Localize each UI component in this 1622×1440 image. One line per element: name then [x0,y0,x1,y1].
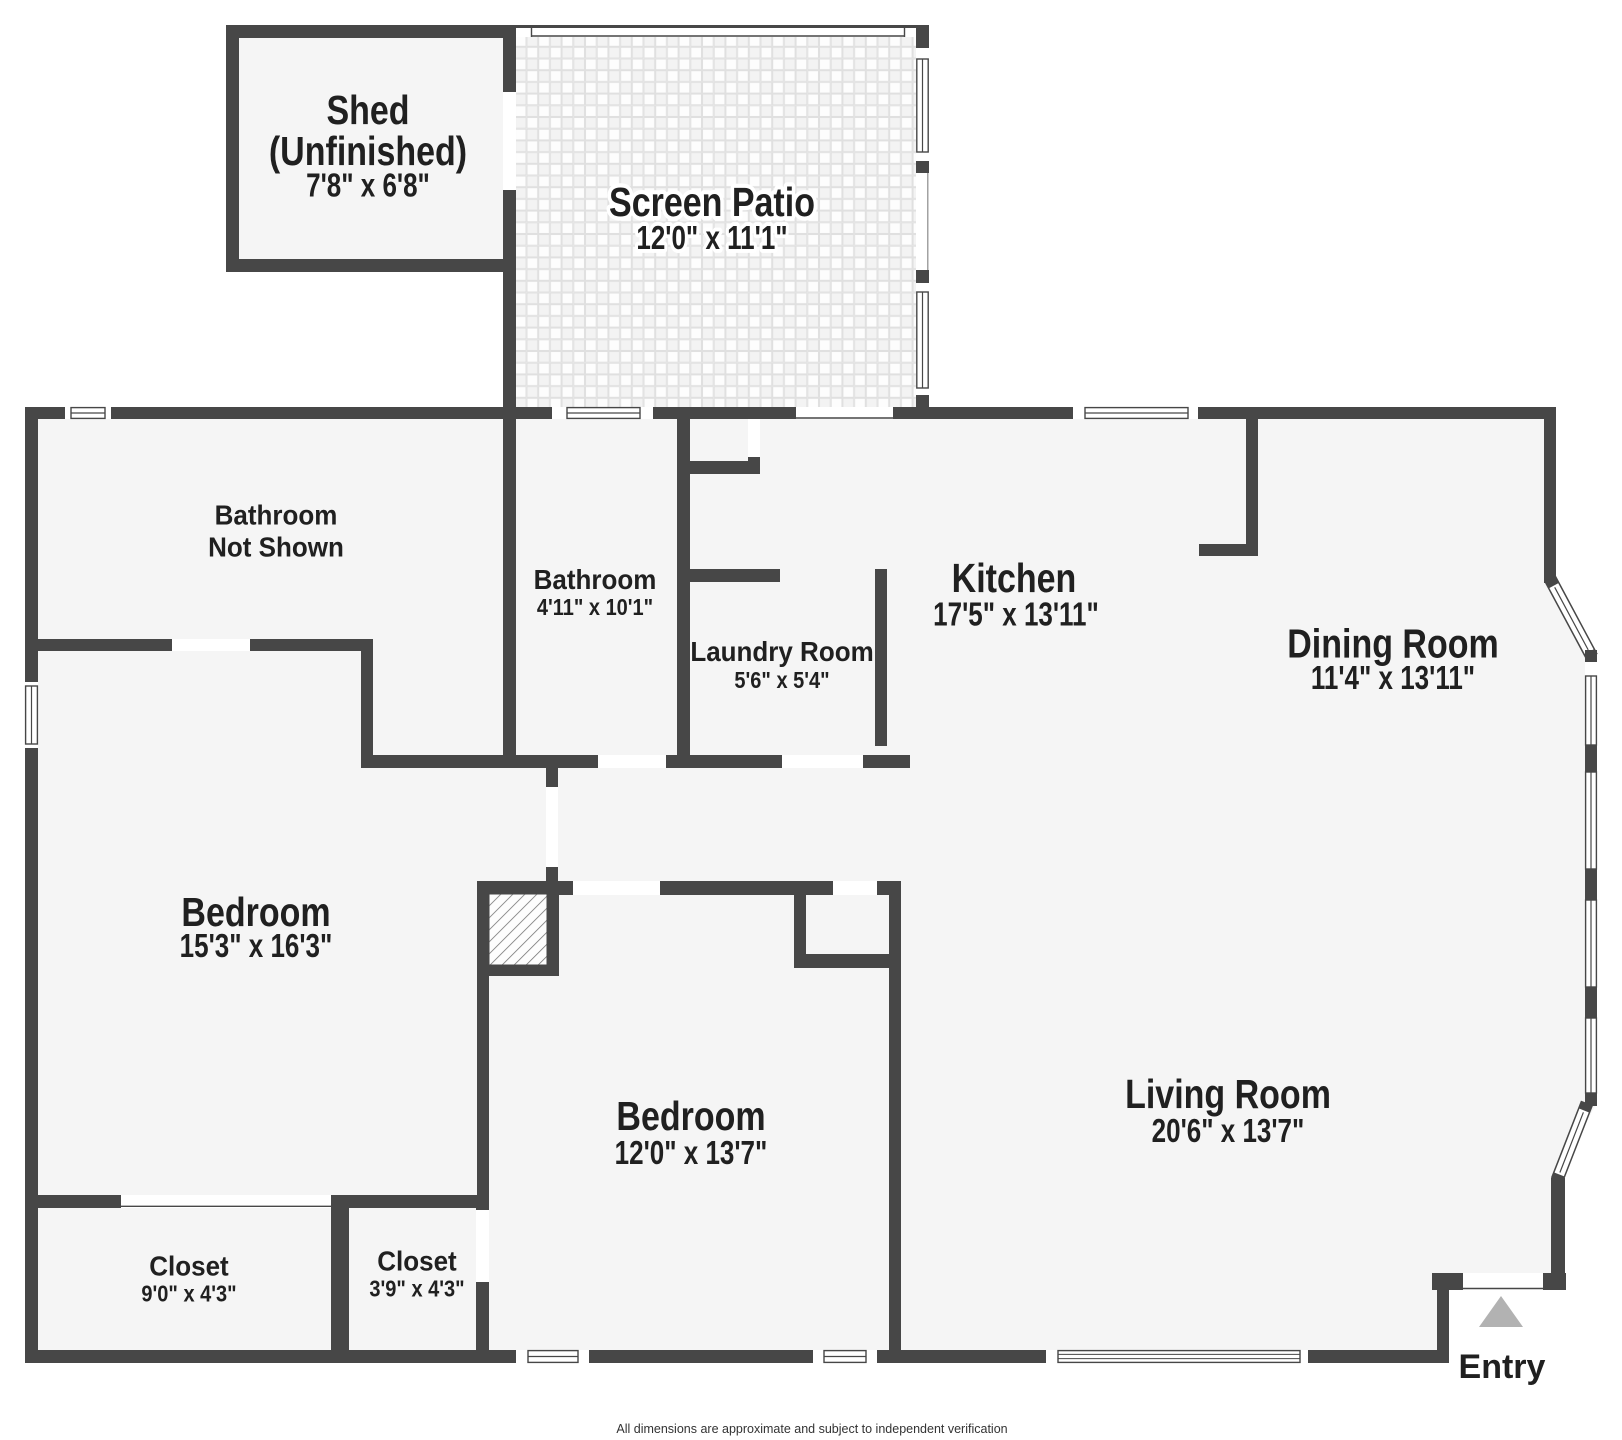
svg-text:All dimensions are approximate: All dimensions are approximate and subje… [616,1422,1007,1436]
svg-text:Bathroom: Bathroom [215,500,338,531]
svg-text:17'5" x 13'11": 17'5" x 13'11" [933,597,1099,634]
svg-text:Screen Patio: Screen Patio [609,179,815,225]
svg-text:20'6" x 13'7": 20'6" x 13'7" [1152,1113,1305,1150]
svg-text:Entry: Entry [1459,1348,1546,1386]
svg-text:Laundry Room: Laundry Room [690,636,873,667]
svg-text:4'11" x 10'1": 4'11" x 10'1" [537,594,653,621]
svg-text:5'6" x 5'4": 5'6" x 5'4" [734,667,829,694]
svg-text:Kitchen: Kitchen [952,555,1077,601]
svg-text:9'0" x 4'3": 9'0" x 4'3" [141,1280,236,1307]
svg-text:Bedroom: Bedroom [616,1093,765,1139]
svg-text:3'9" x 4'3": 3'9" x 4'3" [369,1275,464,1302]
svg-text:11'4" x 13'11": 11'4" x 13'11" [1311,660,1475,697]
svg-text:15'3" x 16'3": 15'3" x 16'3" [180,928,333,965]
svg-text:12'0" x 13'7": 12'0" x 13'7" [615,1135,768,1172]
svg-text:7'8" x 6'8": 7'8" x 6'8" [306,168,430,205]
svg-text:Closet: Closet [149,1251,228,1282]
svg-text:Bathroom: Bathroom [534,564,657,595]
svg-text:Living Room: Living Room [1125,1071,1331,1117]
svg-text:Shed: Shed [326,87,409,133]
svg-text:12'0" x 11'1": 12'0" x 11'1" [636,220,787,257]
svg-text:Closet: Closet [377,1246,456,1277]
svg-text:Not Shown: Not Shown [208,532,344,563]
